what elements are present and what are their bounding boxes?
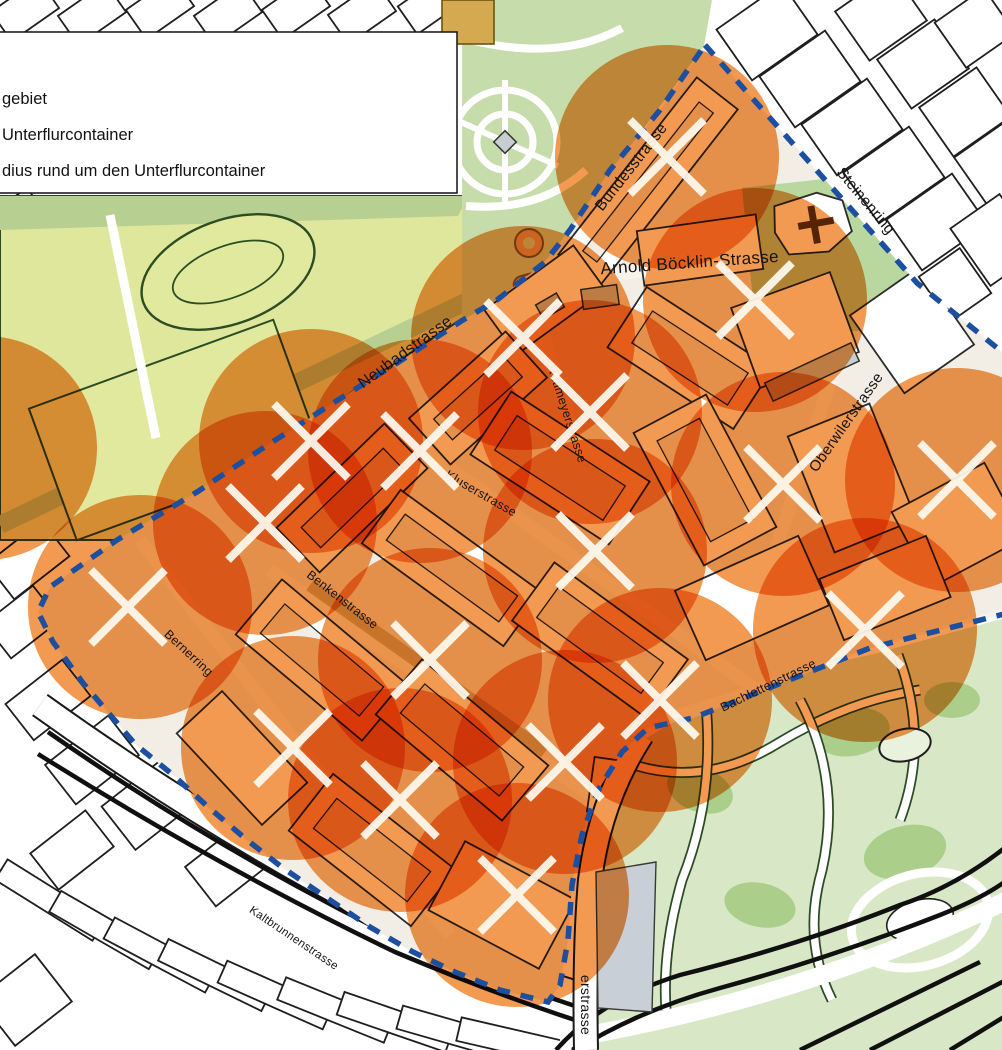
legend-box: gebiet Unterflurcontainer dius rund um d… (0, 32, 457, 193)
legend-item-radius: dius rund um den Unterflurcontainer (2, 162, 266, 180)
city-map: BundesstrasseSteinenringArnold Böcklin-S… (0, 0, 1002, 1050)
street-label-erstrasse: erstrasse (578, 975, 594, 1035)
legend-item-pilot-area: gebiet (2, 90, 47, 108)
map-screenshot: BundesstrasseSteinenringArnold Böcklin-S… (0, 0, 1002, 1050)
legend-item-container: Unterflurcontainer (2, 126, 134, 144)
